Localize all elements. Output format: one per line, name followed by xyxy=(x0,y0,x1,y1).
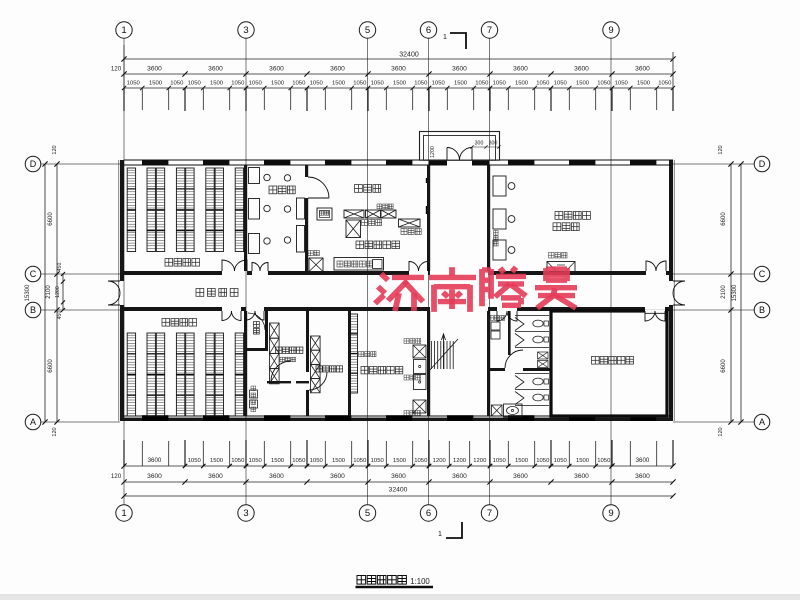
svg-text:1050: 1050 xyxy=(597,458,611,464)
svg-text:1500: 1500 xyxy=(210,458,224,464)
svg-text:1500: 1500 xyxy=(393,458,407,464)
svg-text:1500: 1500 xyxy=(271,458,285,464)
svg-text:1050: 1050 xyxy=(615,81,629,87)
svg-text:D: D xyxy=(759,159,766,169)
svg-text:1050: 1050 xyxy=(554,81,568,87)
svg-text:1050: 1050 xyxy=(371,458,385,464)
svg-text:3600: 3600 xyxy=(636,457,650,464)
svg-text:D: D xyxy=(30,159,37,169)
svg-text:3600: 3600 xyxy=(452,66,467,73)
svg-text:1050: 1050 xyxy=(188,81,202,87)
svg-text:1050: 1050 xyxy=(310,458,324,464)
svg-text:6600: 6600 xyxy=(48,359,54,373)
svg-text:1050: 1050 xyxy=(231,81,245,87)
svg-text:1050: 1050 xyxy=(127,81,141,87)
svg-text:1200: 1200 xyxy=(55,286,61,298)
svg-text:1050: 1050 xyxy=(292,81,306,87)
svg-text:1050: 1050 xyxy=(432,81,446,87)
svg-text:3600: 3600 xyxy=(330,473,345,480)
svg-text:120: 120 xyxy=(111,473,122,480)
svg-text:1050: 1050 xyxy=(554,458,568,464)
svg-text:1200: 1200 xyxy=(453,458,467,464)
svg-text:120: 120 xyxy=(718,427,724,436)
svg-text:3600: 3600 xyxy=(635,66,650,73)
svg-text:3600: 3600 xyxy=(208,66,223,73)
svg-text:A: A xyxy=(759,417,765,427)
svg-text:1050: 1050 xyxy=(231,458,245,464)
svg-text:1050: 1050 xyxy=(536,458,550,464)
svg-text:3600: 3600 xyxy=(574,473,589,480)
svg-text:32400: 32400 xyxy=(399,52,419,59)
svg-text:C: C xyxy=(30,269,37,279)
svg-text:1500: 1500 xyxy=(210,81,224,87)
svg-text:1: 1 xyxy=(438,531,442,538)
svg-text:1050: 1050 xyxy=(170,81,184,87)
svg-text:120: 120 xyxy=(52,427,58,436)
svg-text:1500: 1500 xyxy=(332,458,346,464)
svg-text:3600: 3600 xyxy=(391,473,406,480)
svg-text:7: 7 xyxy=(487,25,492,36)
svg-text:3600: 3600 xyxy=(147,473,162,480)
svg-text:1050: 1050 xyxy=(414,458,428,464)
svg-text:1:100: 1:100 xyxy=(410,577,430,586)
svg-text:3: 3 xyxy=(243,25,248,36)
svg-text:1200: 1200 xyxy=(473,458,487,464)
svg-text:1: 1 xyxy=(121,508,126,519)
svg-text:1: 1 xyxy=(443,34,447,41)
svg-text:B: B xyxy=(30,305,36,315)
svg-text:1050: 1050 xyxy=(249,81,263,87)
svg-text:1500: 1500 xyxy=(576,458,590,464)
svg-text:120: 120 xyxy=(111,66,122,73)
svg-text:9: 9 xyxy=(608,25,613,36)
svg-text:1050: 1050 xyxy=(292,458,306,464)
svg-text:1500: 1500 xyxy=(515,458,529,464)
svg-text:15300: 15300 xyxy=(25,284,31,301)
svg-text:300: 300 xyxy=(475,141,484,147)
svg-text:1500: 1500 xyxy=(515,81,529,87)
svg-text:1050: 1050 xyxy=(353,81,367,87)
svg-text:1500: 1500 xyxy=(454,81,468,87)
svg-text:5: 5 xyxy=(365,508,370,519)
svg-text:3600: 3600 xyxy=(147,66,162,73)
svg-text:1200: 1200 xyxy=(430,146,436,158)
svg-text:300: 300 xyxy=(489,141,498,147)
svg-text:1050: 1050 xyxy=(475,81,489,87)
svg-text:1: 1 xyxy=(121,25,126,36)
svg-text:1500: 1500 xyxy=(637,81,651,87)
svg-text:1050: 1050 xyxy=(658,81,672,87)
svg-text:1500: 1500 xyxy=(271,81,285,87)
svg-text:5: 5 xyxy=(365,25,370,36)
svg-text:1050: 1050 xyxy=(493,81,507,87)
svg-text:120: 120 xyxy=(718,145,724,154)
svg-text:1050: 1050 xyxy=(371,81,385,87)
svg-text:3600: 3600 xyxy=(269,66,284,73)
svg-text:1050: 1050 xyxy=(597,81,611,87)
svg-text:1050: 1050 xyxy=(414,81,428,87)
svg-text:1050: 1050 xyxy=(310,81,324,87)
svg-text:3600: 3600 xyxy=(148,457,162,464)
svg-text:A: A xyxy=(30,417,36,427)
svg-text:1050: 1050 xyxy=(536,81,550,87)
svg-text:1050: 1050 xyxy=(493,458,507,464)
svg-text:1050: 1050 xyxy=(353,458,367,464)
svg-text:B: B xyxy=(759,305,765,315)
svg-text:1500: 1500 xyxy=(149,81,163,87)
svg-text:C: C xyxy=(759,269,766,279)
svg-text:1500: 1500 xyxy=(576,81,590,87)
svg-text:9: 9 xyxy=(608,508,613,519)
svg-text:6: 6 xyxy=(426,508,431,519)
svg-text:3600: 3600 xyxy=(330,66,345,73)
svg-text:32400: 32400 xyxy=(389,487,408,494)
svg-text:7: 7 xyxy=(487,508,492,519)
svg-text:3600: 3600 xyxy=(269,473,284,480)
svg-text:15300: 15300 xyxy=(732,284,738,301)
svg-text:1050: 1050 xyxy=(249,458,263,464)
svg-text:1200: 1200 xyxy=(433,458,447,464)
svg-text:450: 450 xyxy=(57,311,63,320)
svg-text:6600: 6600 xyxy=(48,212,54,226)
svg-text:3600: 3600 xyxy=(513,473,528,480)
svg-text:3600: 3600 xyxy=(513,66,528,73)
svg-text:450: 450 xyxy=(57,263,63,272)
svg-text:1500: 1500 xyxy=(393,81,407,87)
svg-text:6600: 6600 xyxy=(721,359,727,373)
svg-text:3: 3 xyxy=(243,508,248,519)
svg-text:6: 6 xyxy=(426,25,431,36)
svg-text:1500: 1500 xyxy=(332,81,346,87)
svg-text:120: 120 xyxy=(52,145,58,154)
svg-text:6600: 6600 xyxy=(721,212,727,226)
svg-text:3600: 3600 xyxy=(391,66,406,73)
svg-text:3600: 3600 xyxy=(574,66,589,73)
svg-text:3600: 3600 xyxy=(452,473,467,480)
svg-text:3600: 3600 xyxy=(635,473,650,480)
svg-text:2100: 2100 xyxy=(721,285,727,299)
svg-text:3600: 3600 xyxy=(208,473,223,480)
svg-text:2100: 2100 xyxy=(46,285,52,299)
svg-text:1050: 1050 xyxy=(188,458,202,464)
